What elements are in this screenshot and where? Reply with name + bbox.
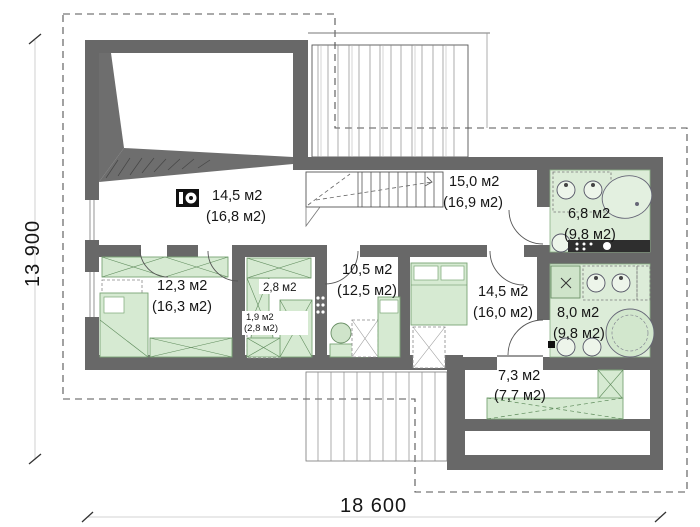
room-label-bedroom-right-total: (16,0 м2)	[473, 305, 533, 321]
room-label-bath-top: 6,8 м2	[568, 206, 610, 222]
room-label-bath-bottom: 8,0 м2	[557, 305, 599, 321]
room-label-wardrobe-room-total: (7,7 м2)	[494, 388, 546, 404]
room-label-hall-total: (16,9 м2)	[443, 195, 503, 211]
room-label-closet-lower: 1,9 м2	[246, 312, 274, 323]
interior-stairs	[306, 172, 443, 226]
bottom-terrace-roof	[306, 372, 447, 461]
floor-plan-drawing: 14,5 м2 (16,8 м2) 15,0 м2 (16,9 м2) 6,8 …	[0, 0, 700, 527]
washing-machine-icon	[176, 189, 199, 207]
double-bed	[411, 263, 467, 325]
room-label-closet-lower-total: (2,8 м2)	[244, 323, 278, 334]
room-label-bedroom-right: 14,5 м2	[478, 284, 528, 300]
room-label-bedroom-left-total: (16,3 м2)	[152, 299, 212, 315]
corner-tub-icon	[606, 309, 654, 357]
room-label-laundry: 14,5 м2	[212, 188, 262, 204]
bed	[100, 293, 148, 357]
room-label-corridor: 10,5 м2	[342, 262, 392, 278]
room-label-closet-upper: 2,8 м2	[263, 282, 296, 294]
room-label-laundry-total: (16,8 м2)	[206, 209, 266, 225]
room-label-hall: 15,0 м2	[449, 174, 499, 190]
floor-plan-canvas: 14,5 м2 (16,8 м2) 15,0 м2 (16,9 м2) 6,8 …	[0, 0, 700, 527]
floor-cabinet	[150, 338, 232, 357]
bedroom-right-wardrobe	[413, 327, 445, 368]
room-label-bath-top-total: (9,8 м2)	[564, 227, 616, 243]
room-label-wardrobe-room: 7,3 м2	[498, 368, 540, 384]
width-dimension-label: 18 600	[340, 495, 407, 517]
height-dimension-label: 13 900	[22, 220, 44, 287]
corridor-wardrobe	[352, 320, 378, 357]
room-label-bath-bottom-total: (9,8 м2)	[553, 326, 605, 342]
corridor-bed	[378, 297, 400, 357]
roof-slope-wedge	[99, 53, 293, 182]
room-label-corridor-total: (12,5 м2)	[337, 283, 397, 299]
room-label-bedroom-left: 12,3 м2	[157, 278, 207, 294]
